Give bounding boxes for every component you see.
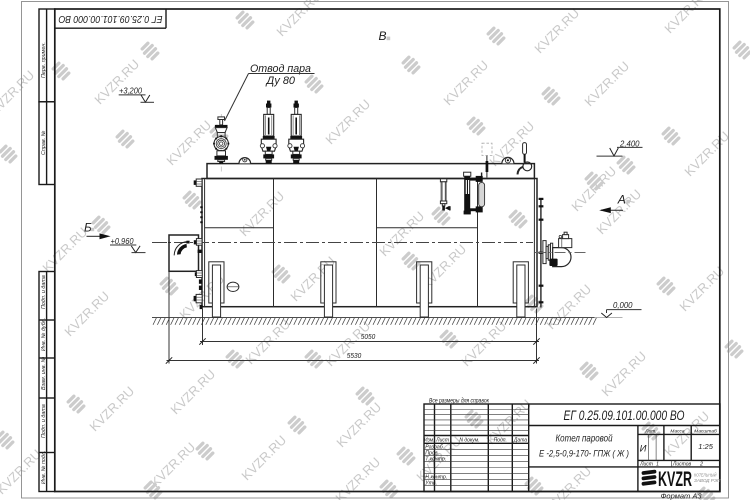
- svg-text:KVZR.RU: KVZR.RU: [543, 463, 594, 500]
- svg-text:KVZR.RU: KVZR.RU: [332, 454, 383, 500]
- svg-text:Котел паровой: Котел паровой: [556, 433, 613, 445]
- svg-text:KVZR.RU: KVZR.RU: [273, 0, 324, 39]
- svg-text:KVZR.RU: KVZR.RU: [440, 57, 491, 108]
- svg-text:KVZR.RU: KVZR.RU: [681, 128, 732, 179]
- svg-text:5050: 5050: [361, 334, 376, 341]
- svg-text:Т.контр.: Т.контр.: [425, 457, 446, 463]
- svg-text:KVZR.RU: KVZR.RU: [238, 432, 289, 483]
- svg-text:В: В: [379, 29, 387, 43]
- svg-text:KVZR.RU: KVZR.RU: [86, 383, 137, 434]
- svg-text:KVZR.RU: KVZR.RU: [0, 67, 37, 118]
- svg-text:ЕГ 0.25.09.101.00.000 ВО: ЕГ 0.25.09.101.00.000 ВО: [58, 13, 162, 24]
- svg-text:+3,200: +3,200: [119, 86, 143, 95]
- svg-text:Инв. № подл.: Инв. № подл.: [41, 451, 47, 484]
- svg-text:5530: 5530: [347, 353, 362, 360]
- svg-text:KVZR.RU: KVZR.RU: [147, 439, 198, 490]
- svg-text:Ду 80: Ду 80: [265, 75, 296, 87]
- svg-text:KVZR.RU: KVZR.RU: [458, 318, 509, 369]
- svg-text:KVZR.RU: KVZR.RU: [376, 208, 427, 259]
- svg-text:0,000: 0,000: [613, 301, 633, 310]
- svg-text:Подп. и дата: Подп. и дата: [41, 275, 47, 309]
- svg-text:Все размеры для справок: Все размеры для справок: [429, 397, 490, 405]
- svg-text:KVZR.RU: KVZR.RU: [91, 56, 142, 107]
- svg-text:KVZR: KVZR: [658, 468, 692, 491]
- svg-text:Масштаб: Масштаб: [694, 428, 717, 434]
- svg-text:Подп. и дата: Подп. и дата: [41, 404, 47, 438]
- svg-text:Изм.: Изм.: [424, 437, 435, 443]
- svg-text:Инв. № дубл.: Инв. № дубл.: [41, 318, 47, 351]
- svg-text:Б: Б: [84, 221, 92, 235]
- svg-text:А: А: [617, 192, 626, 206]
- svg-text:Лит.: Лит.: [644, 428, 656, 434]
- svg-text:KVZR.RU: KVZR.RU: [0, 446, 44, 497]
- svg-text:Дата: Дата: [513, 437, 527, 443]
- svg-text:Формат А3: Формат А3: [660, 492, 702, 500]
- svg-text:Подп.: Подп.: [494, 437, 507, 443]
- svg-text:KVZR.RU: KVZR.RU: [543, 281, 594, 332]
- svg-text:KVZR.RU: KVZR.RU: [531, 5, 582, 56]
- svg-text:Справ. №: Справ. №: [41, 130, 47, 155]
- svg-text:KVZR.RU: KVZR.RU: [598, 348, 649, 399]
- svg-text:Лист: Лист: [435, 437, 449, 443]
- svg-text:KVZR.RU: KVZR.RU: [236, 188, 287, 239]
- svg-text:Лист: Лист: [639, 461, 653, 467]
- svg-text:Взам. инв. №: Взам. инв. №: [41, 356, 47, 390]
- svg-text:KVZR.RU: KVZR.RU: [568, 163, 619, 214]
- svg-text:1: 1: [656, 461, 659, 467]
- svg-text:Разраб.: Разраб.: [425, 444, 444, 450]
- svg-text:KVZR.RU: KVZR.RU: [661, 0, 712, 36]
- svg-text:2: 2: [699, 461, 703, 467]
- svg-text:KVZR.RU: KVZR.RU: [581, 58, 632, 109]
- svg-text:KVZR.RU: KVZR.RU: [39, 224, 90, 275]
- svg-text:КОТЕЛЬНЫЙ: КОТЕЛЬНЫЙ: [694, 471, 717, 478]
- svg-text:Листов: Листов: [672, 461, 692, 467]
- svg-text:Масса: Масса: [670, 428, 685, 434]
- svg-text:И: И: [640, 444, 647, 455]
- svg-text:ЕГ 0.25.09.101.00.000 ВО: ЕГ 0.25.09.101.00.000 ВО: [564, 408, 685, 423]
- svg-text:KVZR.RU: KVZR.RU: [333, 399, 384, 450]
- svg-text:1:25: 1:25: [698, 442, 713, 451]
- svg-text:ЗАВОД РЭП: ЗАВОД РЭП: [694, 478, 721, 483]
- svg-text:KVZR.RU: KVZR.RU: [163, 117, 214, 168]
- svg-text:KVZR.RU: KVZR.RU: [322, 96, 373, 147]
- svg-text:KVZR.RU: KVZR.RU: [322, 318, 373, 369]
- svg-text:KVZR.RU: KVZR.RU: [167, 366, 218, 417]
- svg-text:Перв. примен.: Перв. примен.: [41, 42, 47, 78]
- svg-text:N докум.: N докум.: [459, 437, 479, 443]
- svg-text:Утв.: Утв.: [425, 481, 437, 487]
- svg-text:KVZR.RU: KVZR.RU: [61, 288, 112, 339]
- svg-text:Е -2,5-0,9-170- ГПЖ ( Ж ): Е -2,5-0,9-170- ГПЖ ( Ж ): [539, 449, 629, 460]
